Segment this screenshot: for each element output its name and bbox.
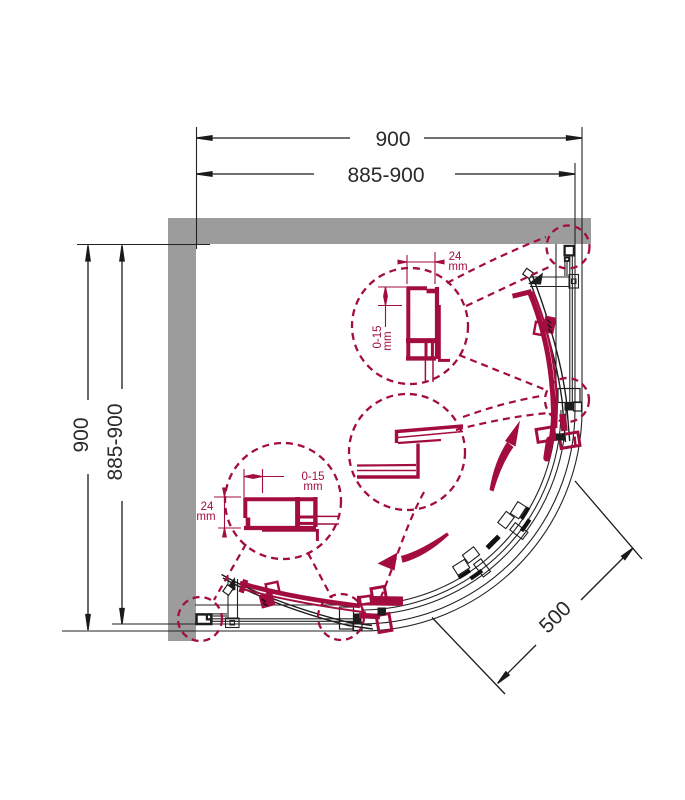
svg-text:mm: mm bbox=[448, 261, 467, 273]
svg-text:900: 900 bbox=[375, 128, 410, 151]
svg-text:885-900: 885-900 bbox=[347, 164, 424, 187]
svg-text:mm: mm bbox=[303, 481, 322, 493]
svg-text:mm: mm bbox=[382, 331, 394, 350]
svg-text:885-900: 885-900 bbox=[104, 403, 127, 480]
svg-text:mm: mm bbox=[196, 511, 215, 523]
svg-text:900: 900 bbox=[70, 417, 93, 452]
